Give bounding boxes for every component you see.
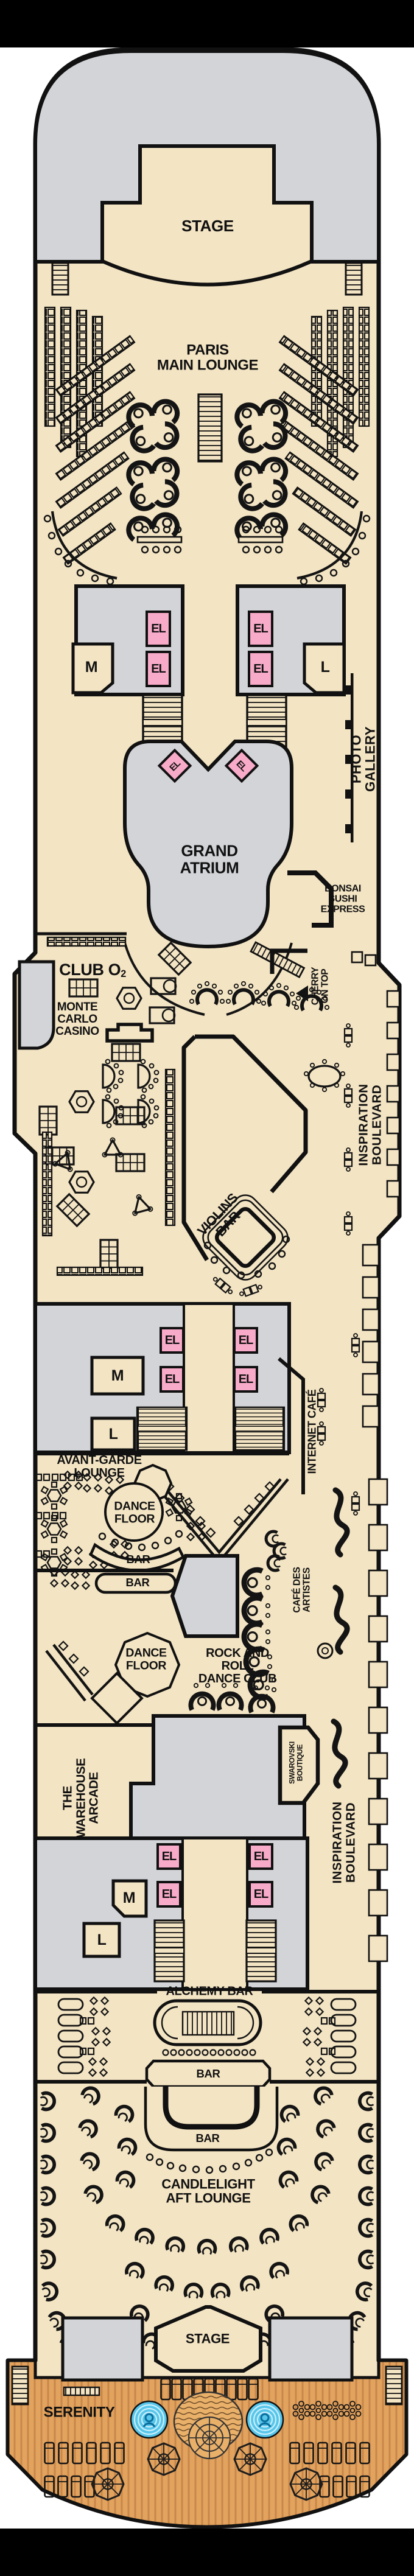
label-dance-floor-1: DANCE FLOOR <box>114 1500 155 1525</box>
elevator-marker: EL <box>156 1843 181 1870</box>
label-main-stage: STAGE <box>181 218 234 235</box>
label-rock-and-roll-dance-club: ROCK AND ROLL DANCE CLUB <box>198 1647 276 1686</box>
elevator-marker: EL <box>160 1327 184 1354</box>
label-mens-room-aft: M <box>123 1890 135 1906</box>
stage-side-stairs-left <box>52 263 68 295</box>
label-internet-cafe: INTERNET CAFÉ <box>306 1390 318 1474</box>
deck-plan: STAGE PARIS MAIN LOUNGE GRAND ATRIUM PHO… <box>0 0 414 2576</box>
label-photo-gallery: PHOTO GALLERY <box>349 726 378 792</box>
label-mens-room-fwd: M <box>85 659 97 676</box>
elevator-marker: EL <box>146 611 171 647</box>
elevator-marker: EL <box>248 1881 273 1908</box>
label-grand-atrium: GRAND ATRIUM <box>180 842 239 876</box>
casino-entry-gray <box>19 962 54 1048</box>
label-bar-avant: BAR <box>127 1553 150 1566</box>
stage-side-stairs-right <box>346 263 362 295</box>
label-dance-floor-2: DANCE FLOOR <box>125 1647 166 1671</box>
label-bonsai-sushi-express: BONSAI SUSHI EXPRESS <box>321 884 365 915</box>
label-bar-candlelight: BAR <box>196 2132 220 2144</box>
elevator-marker: EL <box>233 1327 258 1354</box>
elevator-marker: EL <box>156 1881 181 1908</box>
label-cafe-des-artistes: CAFÉ DES ARTISTES <box>293 1567 313 1612</box>
label-inspiration-boulevard-aft: INSPIRATION BOULEVARD <box>331 1802 357 1884</box>
bottom-letterbox-bar <box>0 2529 414 2576</box>
elevator-marker: EL <box>160 1366 184 1393</box>
label-bar-alchemy-aft: BAR <box>197 2068 220 2080</box>
label-serenity: SERENITY <box>44 2404 115 2420</box>
label-ladies-room-mid: L <box>109 1426 118 1443</box>
label-swarovski-boutique: SWAROVSKI BOUTIQUE <box>288 1741 303 1784</box>
label-cherry-on-top: CHERRY ON TOP <box>311 967 331 1005</box>
label-paris-main-lounge: PARIS MAIN LOUNGE <box>157 343 258 374</box>
aft-deck-gray-right <box>270 2318 352 2380</box>
label-alchemy-bar: ALCHEMY BAR <box>166 1985 253 1998</box>
label-ladies-room-aft: L <box>97 1932 107 1948</box>
elevator-marker: EL <box>233 1366 258 1393</box>
label-club-o2: CLUB O2 <box>59 961 126 979</box>
aft-deck-gray-left <box>63 2318 142 2380</box>
elevator-marker: EL <box>248 611 273 647</box>
top-letterbox-bar <box>0 0 414 47</box>
elevator-marker: EL <box>248 651 273 687</box>
lounge-center-stairs <box>198 394 222 461</box>
label-aft-stage: STAGE <box>186 2331 230 2345</box>
label-monte-carlo-casino: MONTE CARLO CASINO <box>55 1001 99 1038</box>
dance-club-stage-gray <box>172 1556 237 1636</box>
label-bar-club: BAR <box>126 1577 150 1589</box>
elevator-marker: EL <box>248 1843 273 1870</box>
label-candlelight-aft-lounge: CANDLELIGHT AFT LOUNGE <box>161 2177 254 2206</box>
elevator-marker: EL <box>146 651 171 687</box>
label-avant-garde-lounge: AVANT-GARDE LOUNGE <box>57 1454 141 1480</box>
label-ladies-room-fwd: L <box>321 659 330 676</box>
label-mens-room-mid: M <box>111 1368 124 1384</box>
label-warehouse-arcade: THE WAREHOUSE ARCADE <box>61 1759 100 1838</box>
label-inspiration-boulevard-fwd: INSPIRATION BOULEVARD <box>357 1084 383 1166</box>
alchemy-bar-counter <box>155 2001 261 2045</box>
